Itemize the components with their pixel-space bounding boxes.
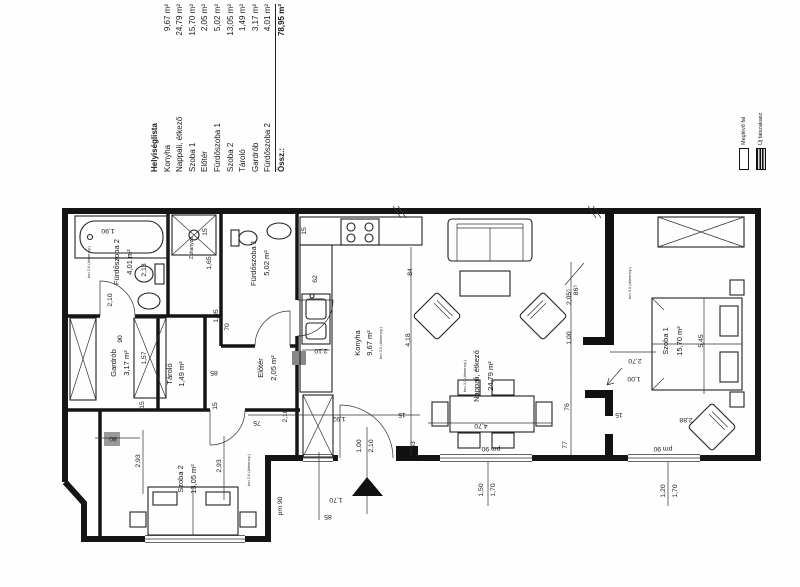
door-arc <box>255 311 290 346</box>
ceiling-note: bm 2,6 (álmenny.) <box>86 245 91 278</box>
dimension-label: 75 <box>253 419 261 426</box>
wardrobe <box>303 395 333 457</box>
dimension-label: 1,05 <box>213 309 220 322</box>
dimension-label: 15 <box>212 402 219 410</box>
room-label-gardrob: Gardrób <box>109 349 118 377</box>
dimension-label: 2,70 <box>628 357 641 364</box>
dimension-label: 1,00 <box>627 375 640 382</box>
dimension-label: 15 <box>615 411 623 418</box>
armchair <box>688 403 736 451</box>
dimension-label: 2,10 <box>314 347 327 354</box>
ceiling-note: bm 3,0 (álmenny.) <box>462 359 467 392</box>
dimension-label: 84 <box>407 268 414 276</box>
washbasin <box>267 223 291 239</box>
sofa <box>448 219 532 261</box>
floorplan-drawing: Fürdőszoba 2 4,01 m² bm 2,6 (álmenny.) Z… <box>0 0 800 587</box>
washbasin <box>138 293 160 309</box>
dimension-label: 90 <box>117 335 124 343</box>
door-arc <box>100 281 135 316</box>
dimension-label: 2,05⁵ <box>566 289 573 305</box>
entrance-door-arc <box>340 405 393 458</box>
dimension-label: 63 <box>410 441 417 449</box>
dimension-label: 4,70 <box>474 422 487 429</box>
kitchen-sink <box>302 294 330 344</box>
dimension-label: 2,10 <box>368 439 375 452</box>
dimension-label: 70 <box>224 323 231 331</box>
dimension-label: 1,92 <box>332 415 345 422</box>
dimension-label: 86⁵ <box>573 285 580 296</box>
dimension-label: 76 <box>564 403 571 411</box>
dimension-label: 1,70 <box>672 484 679 497</box>
room-label-furdoszoba2: Fürdőszoba 2 <box>112 239 121 285</box>
room-area-nappali: 24,79 m² <box>486 361 495 391</box>
room-label-szoba1: Szoba 1 <box>661 327 670 355</box>
dimension-label: 15 <box>301 227 308 235</box>
room-area-furdoszoba2: 4,01 m² <box>125 249 134 275</box>
dimension-label: 1,70 <box>329 496 342 503</box>
room-label-nappali: Nappali, étkező <box>472 350 481 402</box>
toilet <box>135 264 164 284</box>
dimension-label: 15 <box>202 228 209 236</box>
room-area-szoba1: 15,70 m² <box>675 326 684 356</box>
room-area-tarolo: 1,49 m² <box>177 361 186 387</box>
dimension-label: 1,65 <box>206 256 213 269</box>
duct-shaft <box>292 351 306 365</box>
dimension-label: 1,50 <box>478 483 485 496</box>
wardrobe <box>70 318 96 400</box>
dimension-label: 2,13 <box>141 263 148 276</box>
dimension-label: 1,00 <box>566 331 573 344</box>
dimension-label: pm 90 <box>277 496 284 515</box>
dimension-label: 2,10 <box>107 293 114 306</box>
floorplan-sheet: Helyiséglista Konyha9,67 m² Nappali, étk… <box>0 0 800 587</box>
dimension-label: pm 90 <box>653 445 672 452</box>
ceiling-note: bm 2,6 (álmenny.) <box>246 453 251 486</box>
dimension-label: 1,20 <box>660 484 667 497</box>
window <box>628 452 700 464</box>
dimension-label: 85 <box>210 369 218 376</box>
cooktop <box>341 219 379 245</box>
dining-table <box>450 396 534 432</box>
dimension-label: 1,57 <box>141 351 148 364</box>
dimension-label: pm 90 <box>481 445 500 452</box>
dimension-label: 1,00 <box>356 439 363 452</box>
wardrobe <box>658 217 744 247</box>
room-label-eloter: Előtér <box>256 358 265 378</box>
room-area-gardrob: 3,17 m² <box>122 350 131 376</box>
dimension-label: 77 <box>562 441 569 449</box>
dimension-label: 2,93 <box>135 454 142 467</box>
room-area-eloter: 2,05 m² <box>269 355 278 381</box>
armchair <box>413 292 461 340</box>
room-label-furdoszoba1: Fürdőszoba 1 <box>249 240 258 286</box>
ceiling-note: bm 3,0 (álmenny.) <box>378 326 383 359</box>
window <box>440 452 532 464</box>
room-label-zuhanyzo: Zuhanyzó <box>189 237 195 259</box>
armchair <box>519 292 567 340</box>
ceiling-note: bm 3,0 (álmenny.) <box>627 266 632 299</box>
dimension-label: 2,10 <box>282 409 289 422</box>
room-label-tarolo: Tároló <box>165 363 174 384</box>
room-area-konyha: 9,67 m² <box>365 330 374 356</box>
dimension-label: 85 <box>324 513 332 520</box>
dimension-label: 1,90 <box>101 227 114 234</box>
room-area-szoba2: 13,05 m² <box>189 464 198 494</box>
dimension-label: 5,45 <box>698 334 705 347</box>
coffee-table <box>460 271 510 296</box>
dimension-label: 4,18 <box>405 333 412 346</box>
room-area-furdoszoba1: 5,02 m² <box>262 250 271 276</box>
dimension-label: 15 <box>398 411 406 418</box>
dimension-label: 2,93 <box>216 459 223 472</box>
dimension-label: 2,88 <box>679 416 692 423</box>
window <box>303 452 333 464</box>
dimension-label: 1,70 <box>490 483 497 496</box>
windows <box>145 452 700 545</box>
wardrobe <box>134 318 166 398</box>
dimension-label: 62 <box>312 275 319 283</box>
room-label-szoba2: Szoba 2 <box>176 465 185 493</box>
door-arc <box>210 410 245 445</box>
room-label-konyha: Konyha <box>353 329 362 355</box>
dimension-label: 15 <box>139 401 146 409</box>
dimension-label: 80 <box>109 435 117 442</box>
kitchen-counter <box>300 217 422 392</box>
